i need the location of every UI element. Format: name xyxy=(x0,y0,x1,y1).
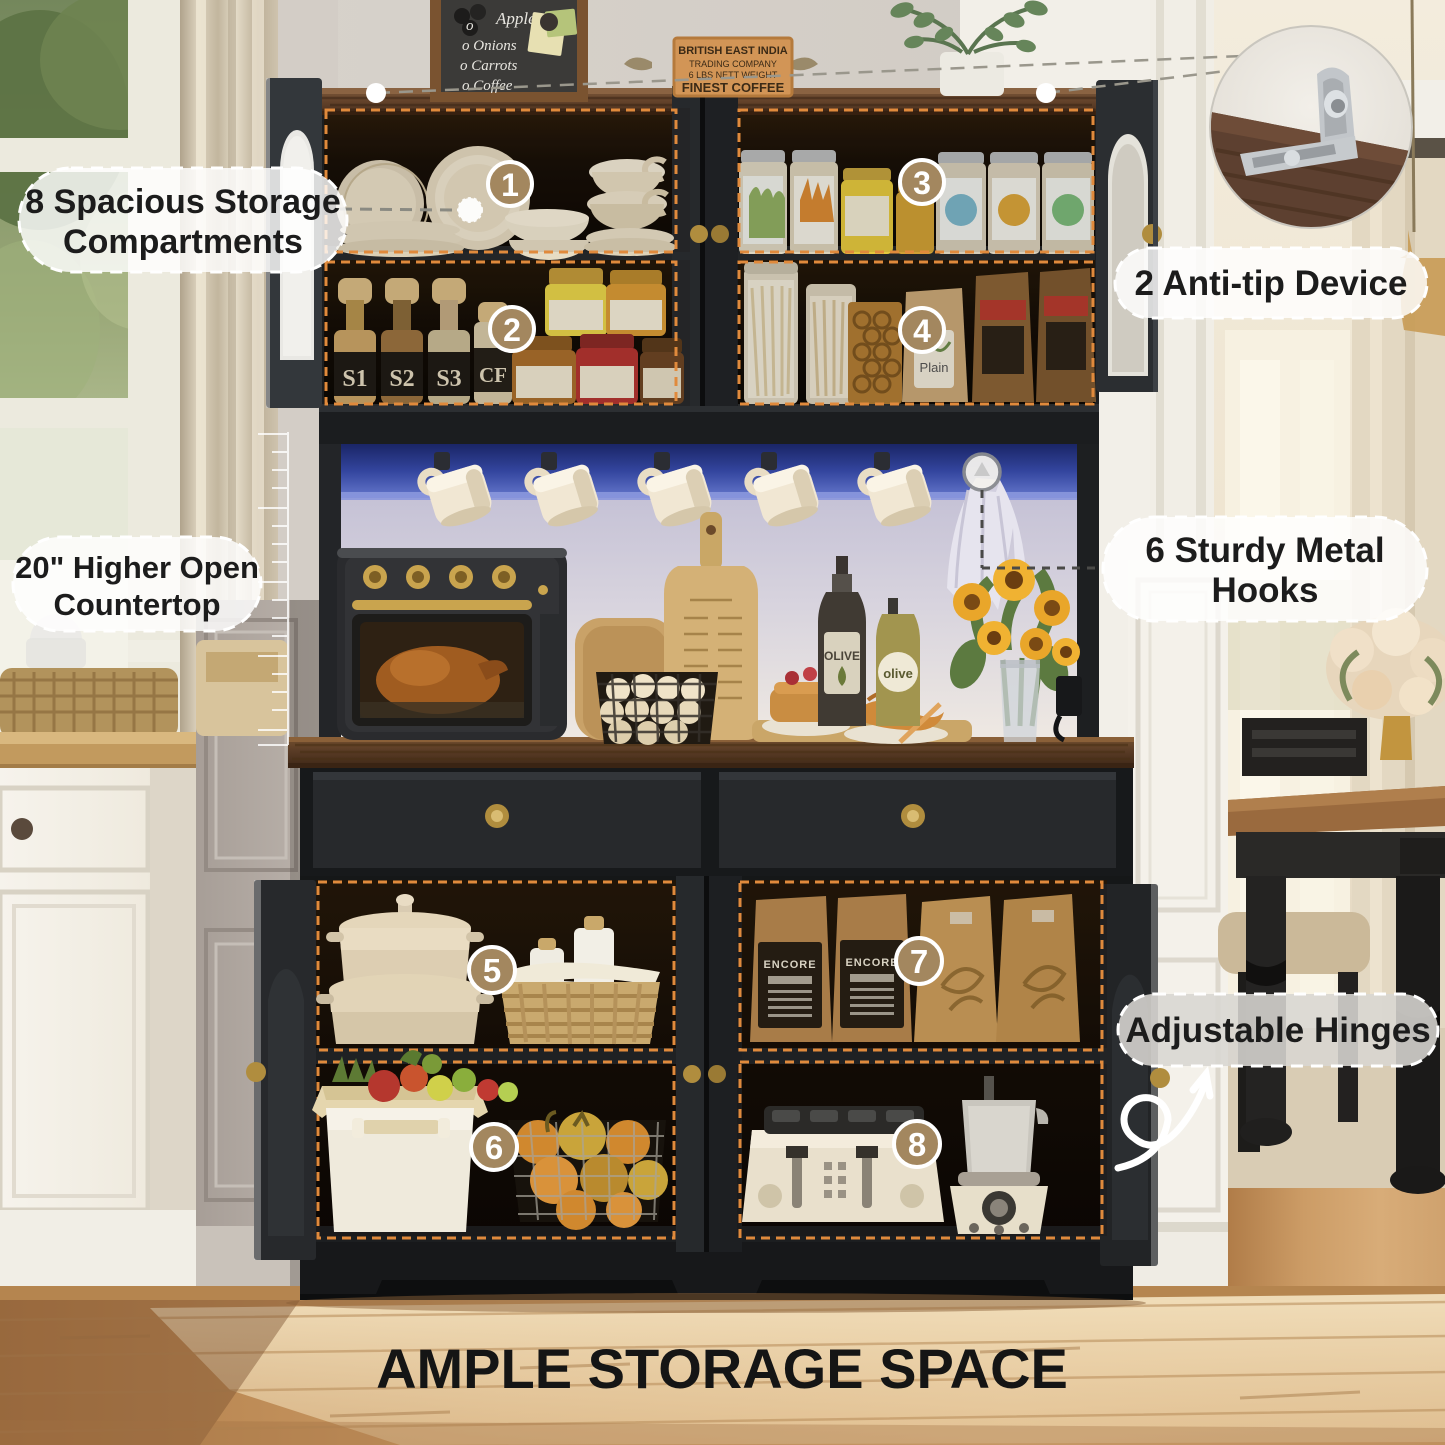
svg-text:4: 4 xyxy=(913,313,931,349)
svg-text:2 Anti-tip Device: 2 Anti-tip Device xyxy=(1135,264,1408,303)
svg-text:Countertop: Countertop xyxy=(53,587,220,622)
svg-text:o: o xyxy=(466,18,474,34)
svg-text:1: 1 xyxy=(501,167,519,203)
svg-text:o Coffee: o Coffee xyxy=(462,78,513,94)
svg-text:6: 6 xyxy=(485,1129,503,1166)
svg-text:3: 3 xyxy=(913,165,931,201)
svg-text:Hooks: Hooks xyxy=(1212,571,1319,610)
svg-text:5: 5 xyxy=(483,952,501,989)
svg-text:ENCORE: ENCORE xyxy=(845,957,898,969)
svg-text:ENCORE: ENCORE xyxy=(763,959,816,971)
svg-text:olive: olive xyxy=(883,666,913,681)
svg-text:BRITISH EAST INDIA: BRITISH EAST INDIA xyxy=(678,45,787,57)
svg-text:Compartments: Compartments xyxy=(63,223,303,261)
svg-text:Adjustable Hinges: Adjustable Hinges xyxy=(1125,1011,1430,1050)
svg-text:6 Sturdy Metal: 6 Sturdy Metal xyxy=(1145,531,1384,570)
svg-text:8: 8 xyxy=(908,1126,926,1163)
svg-text:o Onions: o Onions xyxy=(462,38,517,54)
svg-text:FINEST COFFEE: FINEST COFFEE xyxy=(682,80,785,95)
svg-text:7: 7 xyxy=(910,943,928,980)
svg-text:2: 2 xyxy=(503,312,521,348)
svg-text:8 Spacious Storage: 8 Spacious Storage xyxy=(25,183,341,221)
svg-text:TRADING COMPANY: TRADING COMPANY xyxy=(689,59,777,69)
svg-text:OLIVE: OLIVE xyxy=(824,649,860,663)
svg-text:20" Higher Open: 20" Higher Open xyxy=(15,550,259,585)
svg-text:AMPLE STORAGE SPACE: AMPLE STORAGE SPACE xyxy=(376,1337,1068,1400)
svg-text:o Carrots: o Carrots xyxy=(460,58,518,74)
